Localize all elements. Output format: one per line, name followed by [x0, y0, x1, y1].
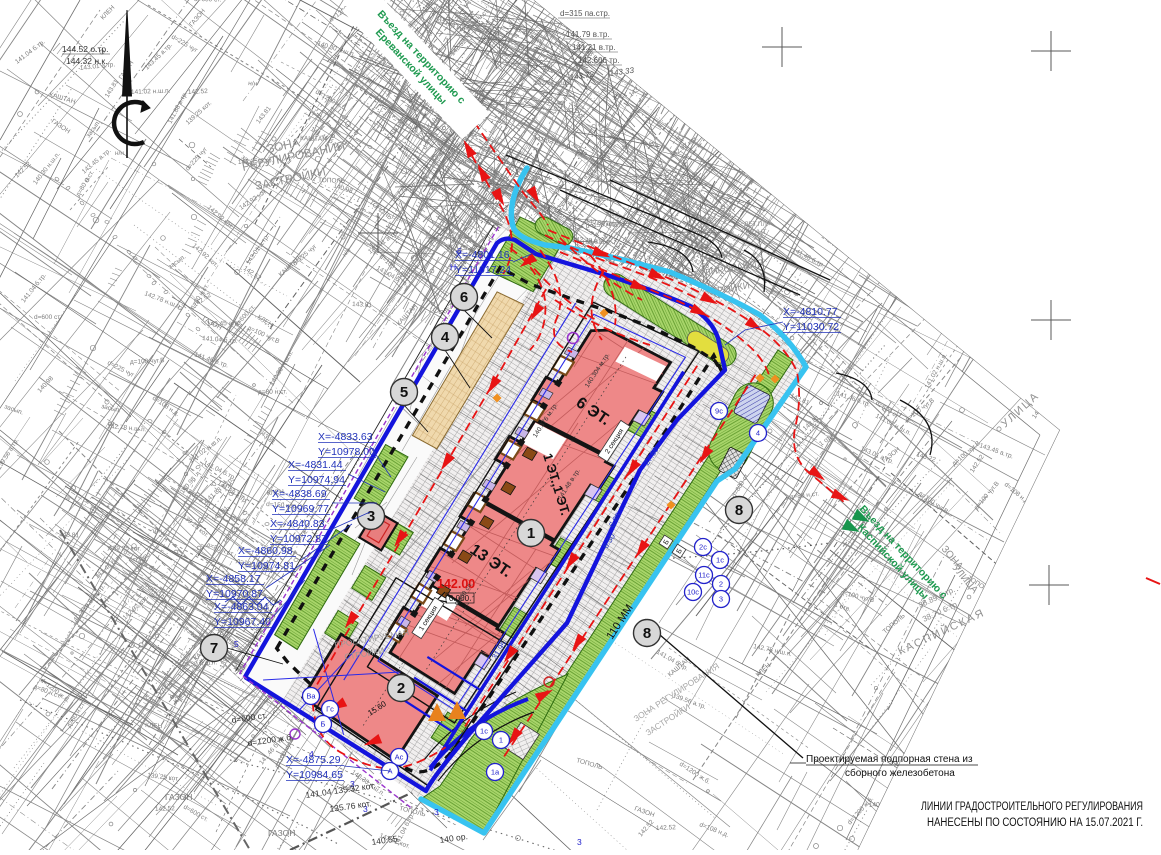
svg-text:8: 8 [735, 502, 743, 519]
svg-text:Гс: Гс [326, 705, 334, 714]
svg-text:142.78 н.ш.п.: 142.78 н.ш.п. [534, 80, 574, 87]
svg-text:3: 3 [719, 595, 723, 604]
svg-text:144.52 о.тр.: 144.52 о.тр. [62, 44, 108, 54]
svg-text:ГАЗОН: ГАЗОН [268, 828, 295, 838]
svg-text:НАНЕСЕНЫ ПО СОСТОЯНИЮ НА 1: НАНЕСЕНЫ ПО СОСТОЯНИЮ НА 15.07.2021 Г. [927, 817, 1143, 829]
svg-text:н/н: н/н [153, 528, 163, 535]
svg-text:X=-4860.98: X=-4860.98 [238, 545, 293, 557]
svg-text:d=600 ст.: d=600 ст. [34, 314, 62, 321]
svg-text:141.79 в.тр.: 141.79 в.тр. [566, 30, 610, 39]
svg-text:2: 2 [719, 580, 723, 589]
svg-text:н/н: н/н [457, 158, 467, 166]
svg-text:X=-4838.69: X=-4838.69 [272, 488, 327, 500]
svg-text:н/н: н/н [115, 150, 125, 157]
svg-text:н/н: н/н [248, 80, 258, 88]
svg-text:1: 1 [527, 525, 535, 542]
svg-text:д=80 н.ст.: д=80 н.ст. [258, 388, 288, 396]
svg-text:X=-4863.04: X=-4863.04 [214, 601, 269, 613]
svg-text:Y=10974.81: Y=10974.81 [238, 560, 295, 572]
svg-text:9с: 9с [715, 407, 723, 416]
svg-text:142.52: 142.52 [656, 824, 676, 832]
svg-text:141.21 в.тр.: 141.21 в.тр. [572, 43, 616, 52]
svg-text:ГРУНТ: ГРУНТ [746, 229, 767, 236]
svg-text:сборного железобетона: сборного железобетона [845, 767, 955, 779]
svg-text:ДЕТ.ПЛ.: ДЕТ.ПЛ. [744, 221, 769, 228]
svg-text:144.32 н.к.: 144.32 н.к. [66, 56, 108, 66]
svg-text:142.606 тр.: 142.606 тр. [578, 56, 619, 65]
svg-text:5: 5 [400, 384, 408, 401]
svg-text:142.52: 142.52 [155, 805, 175, 813]
svg-text:ГАЗОН: ГАЗОН [165, 792, 192, 802]
svg-text:1с: 1с [716, 556, 724, 565]
svg-text:3: 3 [367, 508, 375, 525]
svg-text:ЛИНИИ ГРАДОСТРОИТЕЛЬНОГО РЕГ: ЛИНИИ ГРАДОСТРОИТЕЛЬНОГО РЕГУЛИРОВАНИЯ [921, 801, 1143, 813]
svg-text:X=-4833.63: X=-4833.63 [318, 431, 373, 443]
svg-text:Y=10967.40: Y=10967.40 [214, 616, 271, 628]
svg-text:d=600 ст.: d=600 ст. [194, 0, 222, 3]
svg-text:Ас: Ас [395, 753, 404, 762]
svg-text:Y=10978.00: Y=10978.00 [318, 446, 375, 458]
svg-text:5: 5 [234, 639, 239, 649]
svg-text:X=-4801.16: X=-4801.16 [455, 249, 510, 261]
svg-text:2с: 2с [699, 543, 707, 552]
svg-text:143.81: 143.81 [59, 531, 80, 539]
svg-text:1: 1 [499, 736, 503, 745]
svg-text:3: 3 [434, 807, 439, 817]
svg-text:Ва: Ва [306, 692, 316, 701]
svg-text:X=-4875.29: X=-4875.29 [286, 754, 341, 766]
svg-text:1а: 1а [491, 768, 500, 777]
svg-text:X=-4858.17: X=-4858.17 [206, 573, 261, 585]
svg-text:2: 2 [397, 680, 405, 697]
svg-text:7: 7 [210, 640, 218, 657]
svg-text:8: 8 [643, 625, 651, 642]
svg-text:6: 6 [460, 289, 468, 306]
svg-text:н/н: н/н [543, 63, 553, 71]
svg-text:Y=11030.72: Y=11030.72 [783, 321, 839, 333]
svg-text:4: 4 [756, 429, 760, 438]
svg-text:Б: Б [321, 720, 326, 729]
svg-text:КЛЕН: КЛЕН [145, 722, 163, 730]
svg-text:11с: 11с [698, 571, 710, 580]
svg-text:d=315 па.стр.: d=315 па.стр. [560, 9, 610, 18]
svg-text:142.52: 142.52 [188, 88, 209, 96]
svg-text:Y=11017.24: Y=11017.24 [455, 264, 511, 276]
svg-text:Проектируемая подпорная стена: Проектируемая подпорная стена из [806, 754, 973, 765]
svg-text:141.02 н.ш.п.: 141.02 н.ш.п. [131, 88, 171, 96]
svg-text:Y=10984.65: Y=10984.65 [286, 769, 343, 781]
svg-text:Y=10974.94: Y=10974.94 [288, 474, 345, 486]
svg-text:Y=10969.77: Y=10969.77 [272, 503, 329, 515]
svg-text:X=-4840.83: X=-4840.83 [270, 518, 325, 530]
svg-text:X=-4831.44: X=-4831.44 [288, 459, 343, 471]
svg-text:143.81: 143.81 [352, 301, 373, 309]
svg-text:3: 3 [577, 837, 582, 847]
svg-text:1с: 1с [480, 727, 488, 736]
svg-text:X=-4810.77: X=-4810.77 [783, 306, 838, 318]
svg-text:4: 4 [441, 329, 450, 346]
svg-text:10с: 10с [687, 588, 699, 597]
svg-text:Y=10972.87: Y=10972.87 [270, 533, 327, 545]
